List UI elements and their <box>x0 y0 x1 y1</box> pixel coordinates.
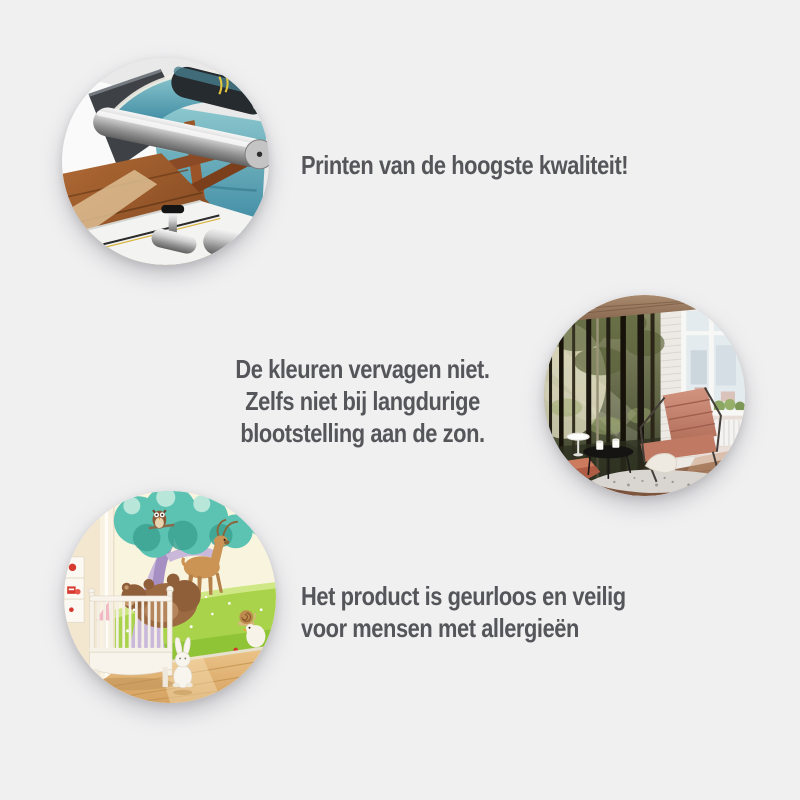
animal-wall-mural <box>114 491 276 671</box>
caption-line: voor mensen met allergieën <box>301 612 626 644</box>
nursery-mural-photo <box>64 491 276 703</box>
caption-print-quality: Printen van de hoogste kwaliteit! <box>301 149 628 181</box>
caption-odorless-safe: Het product is geurloos en veilig voor m… <box>301 580 626 644</box>
caption-line: Het product is geurloos en veilig <box>301 580 626 612</box>
product-benefits-infographic: Printen van de hoogste kwaliteit! <box>0 0 800 800</box>
caption-colors-no-fade: De kleuren vervagen niet. Zelfs niet bij… <box>218 353 508 449</box>
printing-machine-photo <box>62 58 269 265</box>
printing-machine-illustration <box>62 58 269 265</box>
caption-line: Zelfs niet bij langdurige <box>218 385 508 417</box>
caption-line: Printen van de hoogste kwaliteit! <box>301 149 628 181</box>
interior-forest-mural-photo <box>544 295 745 496</box>
nursery-illustration <box>64 491 276 703</box>
feed-roller <box>201 226 269 265</box>
caption-line: blootstelling aan de zon. <box>218 417 508 449</box>
interior-illustration <box>544 295 745 496</box>
ottoman <box>544 458 600 487</box>
caption-line: De kleuren vervagen niet. <box>218 353 508 385</box>
